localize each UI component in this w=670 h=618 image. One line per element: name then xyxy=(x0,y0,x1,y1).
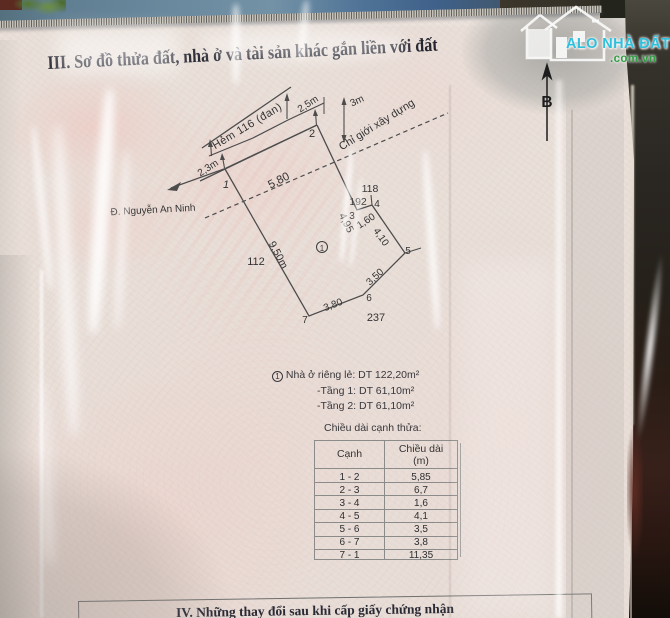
svg-text:4: 4 xyxy=(374,199,380,210)
svg-text:1: 1 xyxy=(223,179,229,191)
svg-text:2,3m: 2,3m xyxy=(196,158,221,179)
svg-text:6: 6 xyxy=(366,293,372,304)
svg-text:4,10: 4,10 xyxy=(371,226,391,249)
svg-text:Hẻm 116 (đan): Hẻm 116 (đan) xyxy=(210,101,284,152)
svg-text:5,80: 5,80 xyxy=(266,171,291,192)
svg-text:1: 1 xyxy=(320,244,325,253)
svg-text:237: 237 xyxy=(367,312,385,324)
svg-text:7: 7 xyxy=(302,315,308,326)
svg-text:112: 112 xyxy=(247,256,265,268)
svg-text:2,5m: 2,5m xyxy=(296,94,321,115)
svg-text:118: 118 xyxy=(362,183,379,195)
svg-text:2: 2 xyxy=(309,128,315,140)
svg-text:3,50: 3,50 xyxy=(364,266,386,288)
svg-text:5: 5 xyxy=(405,246,411,257)
svg-text:3,80: 3,80 xyxy=(322,297,345,314)
svg-text:3m: 3m xyxy=(349,94,366,110)
svg-text:B: B xyxy=(541,94,552,111)
svg-text:Chỉ giới xây dựng: Chỉ giới xây dựng xyxy=(337,97,417,153)
svg-text:9,50m: 9,50m xyxy=(266,239,290,271)
